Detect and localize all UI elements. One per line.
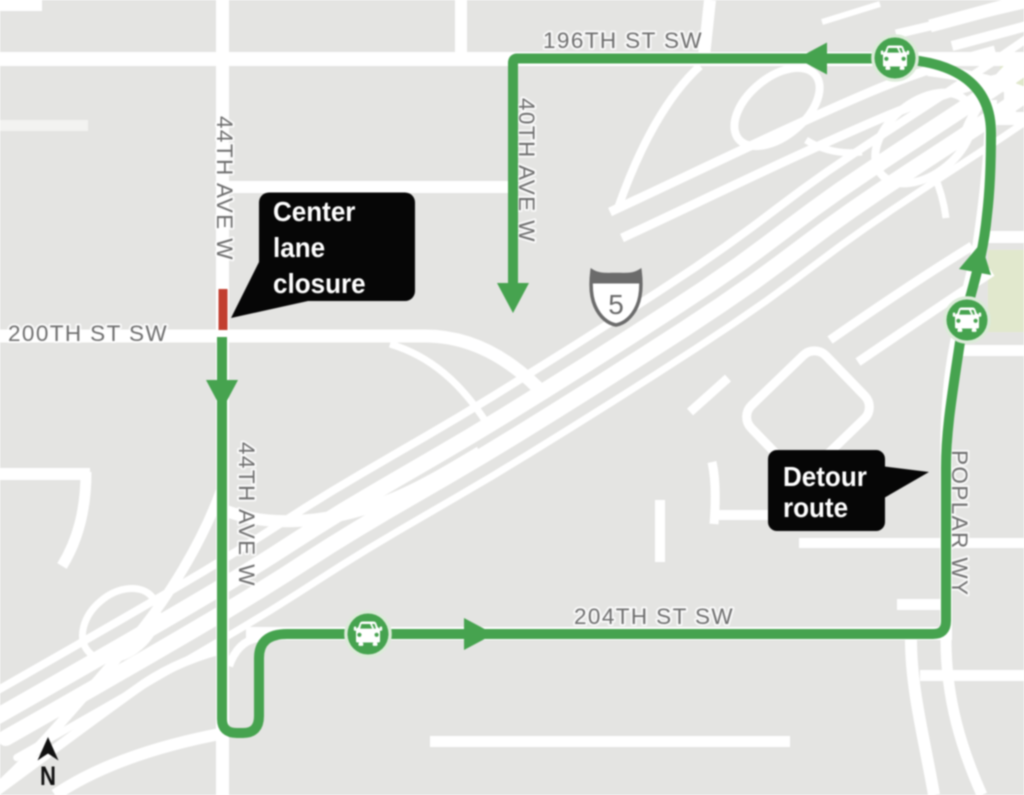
svg-text:204TH ST SW: 204TH ST SW [574, 604, 734, 629]
svg-text:196TH ST SW: 196TH ST SW [543, 28, 703, 53]
svg-text:5: 5 [608, 289, 624, 320]
svg-text:route: route [783, 492, 848, 523]
svg-text:closure: closure [273, 268, 366, 299]
svg-text:lane: lane [273, 232, 325, 263]
svg-text:Center: Center [273, 196, 356, 227]
svg-text:44TH AVE W: 44TH AVE W [212, 116, 237, 261]
svg-text:N: N [40, 762, 56, 792]
svg-text:200TH ST SW: 200TH ST SW [8, 321, 168, 346]
svg-text:44TH AVE W: 44TH AVE W [234, 442, 259, 587]
svg-text:Detour: Detour [783, 461, 867, 492]
